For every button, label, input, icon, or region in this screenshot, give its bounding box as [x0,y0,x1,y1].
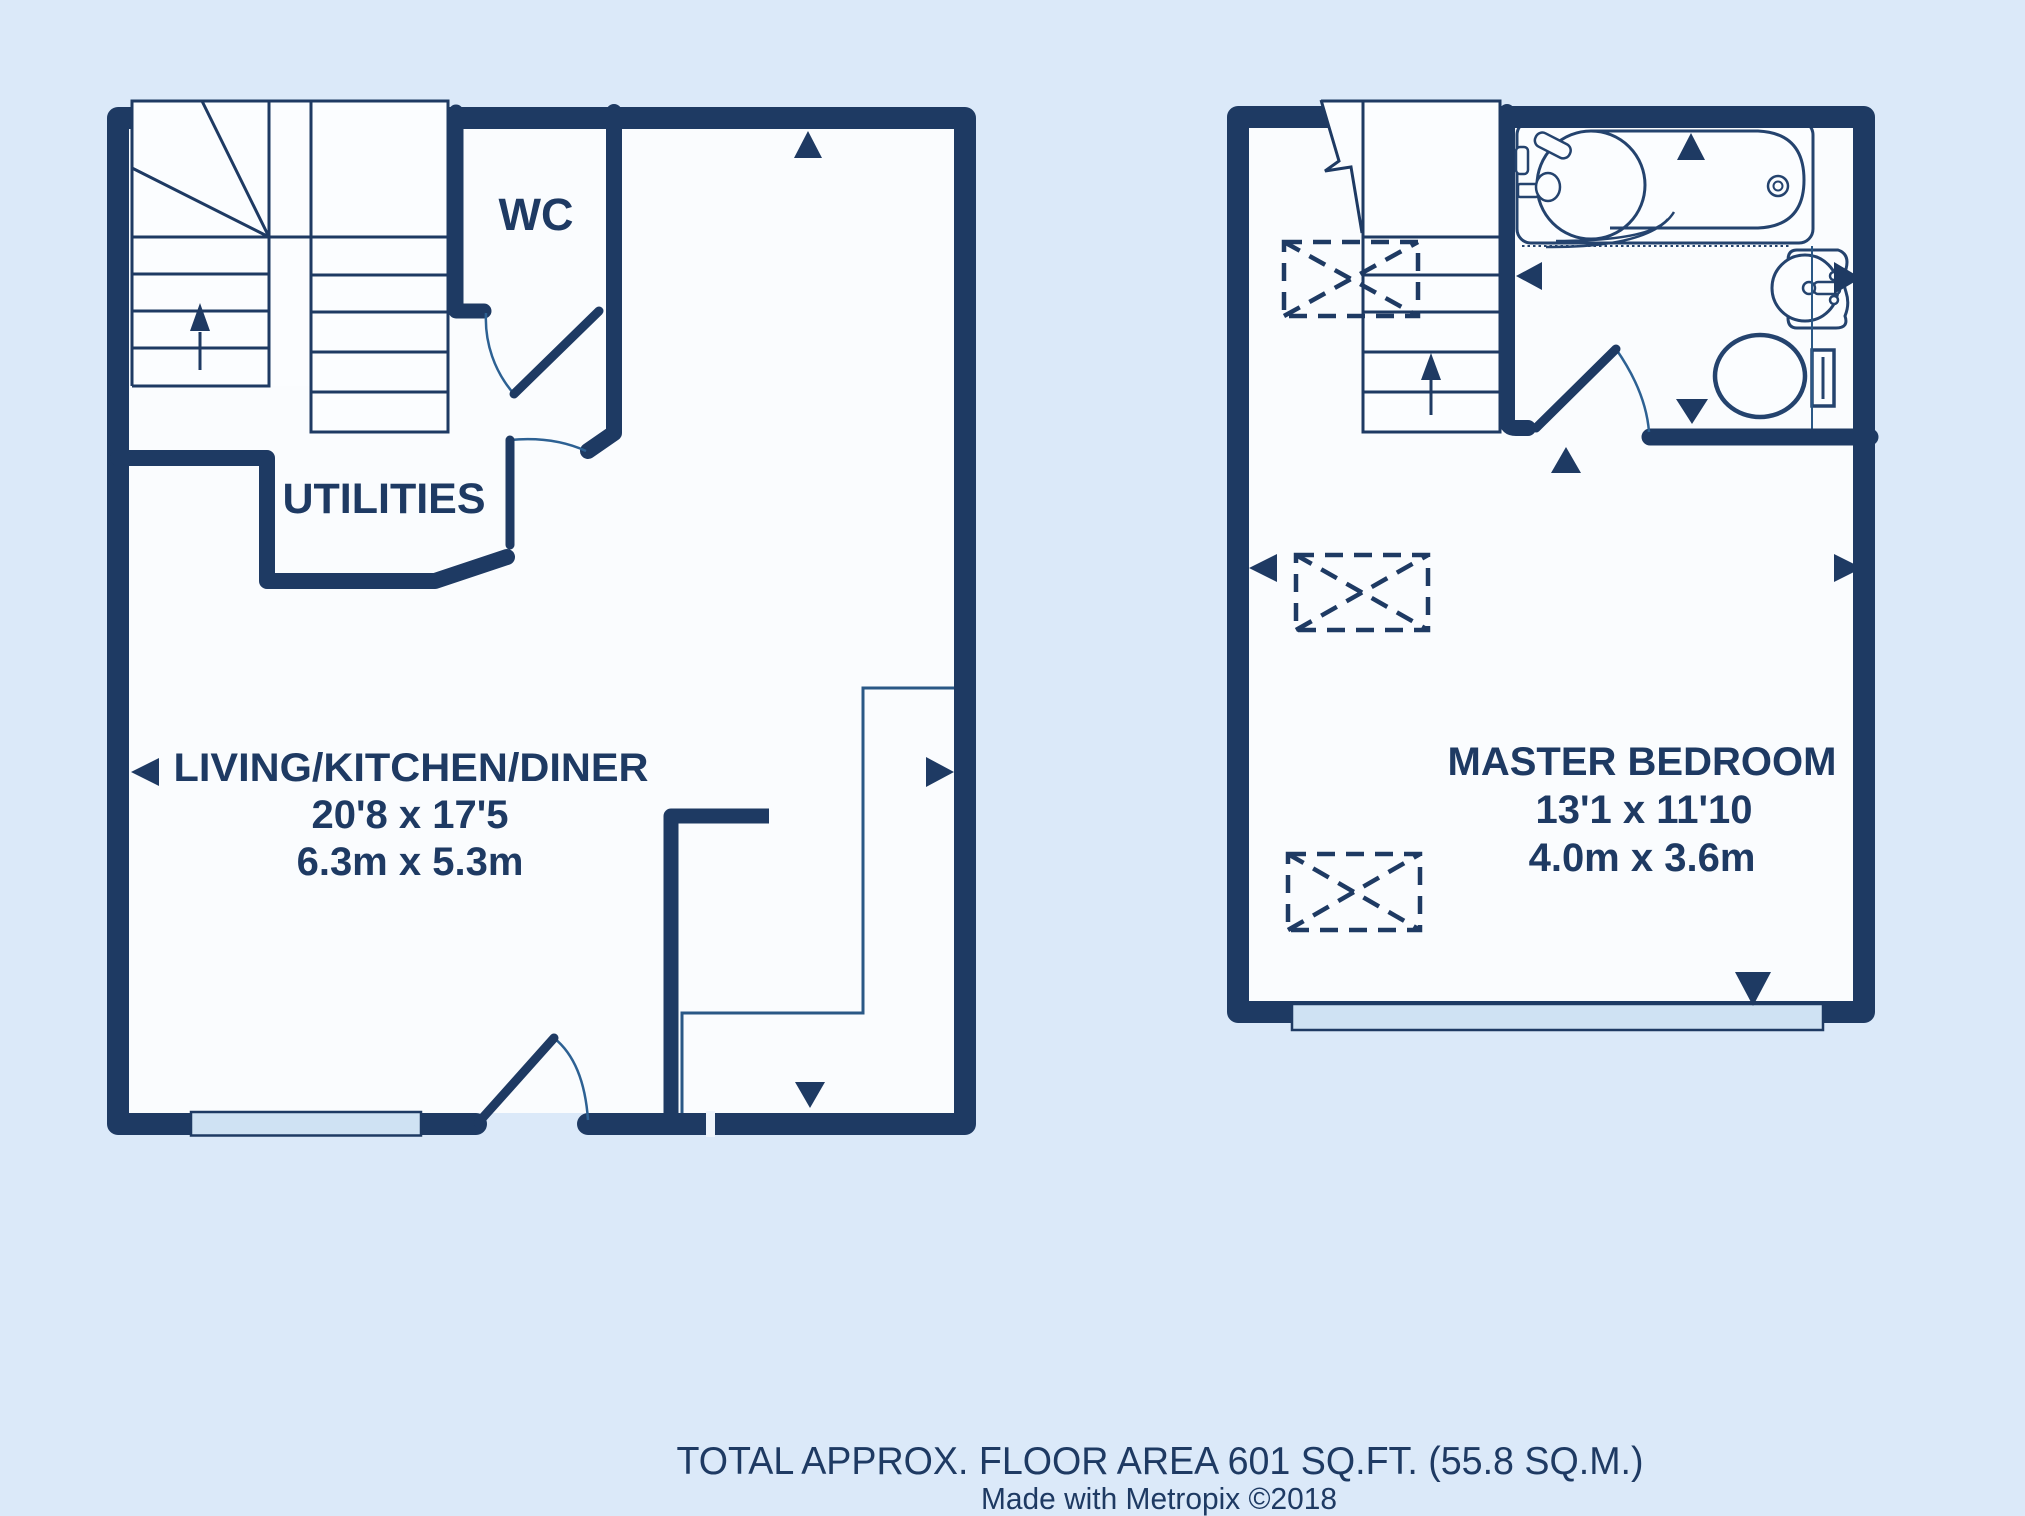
svg-text:WC: WC [499,189,574,240]
svg-text:TOTAL APPROX. FLOOR AREA 601 S: TOTAL APPROX. FLOOR AREA 601 SQ.FT. (55.… [677,1440,1644,1483]
svg-text:MASTER BEDROOM: MASTER BEDROOM [1448,740,1837,784]
svg-text:13'1 x 11'10: 13'1 x 11'10 [1535,788,1752,832]
svg-text:UTILITIES: UTILITIES [282,475,485,523]
svg-text:LIVING/KITCHEN/DINER: LIVING/KITCHEN/DINER [174,746,649,790]
svg-text:Made with Metropix ©2018: Made with Metropix ©2018 [981,1481,1337,1516]
svg-text:4.0m x 3.6m: 4.0m x 3.6m [1529,836,1756,880]
svg-text:20'8 x 17'5: 20'8 x 17'5 [312,793,509,837]
svg-text:6.3m x 5.3m: 6.3m x 5.3m [297,840,524,884]
